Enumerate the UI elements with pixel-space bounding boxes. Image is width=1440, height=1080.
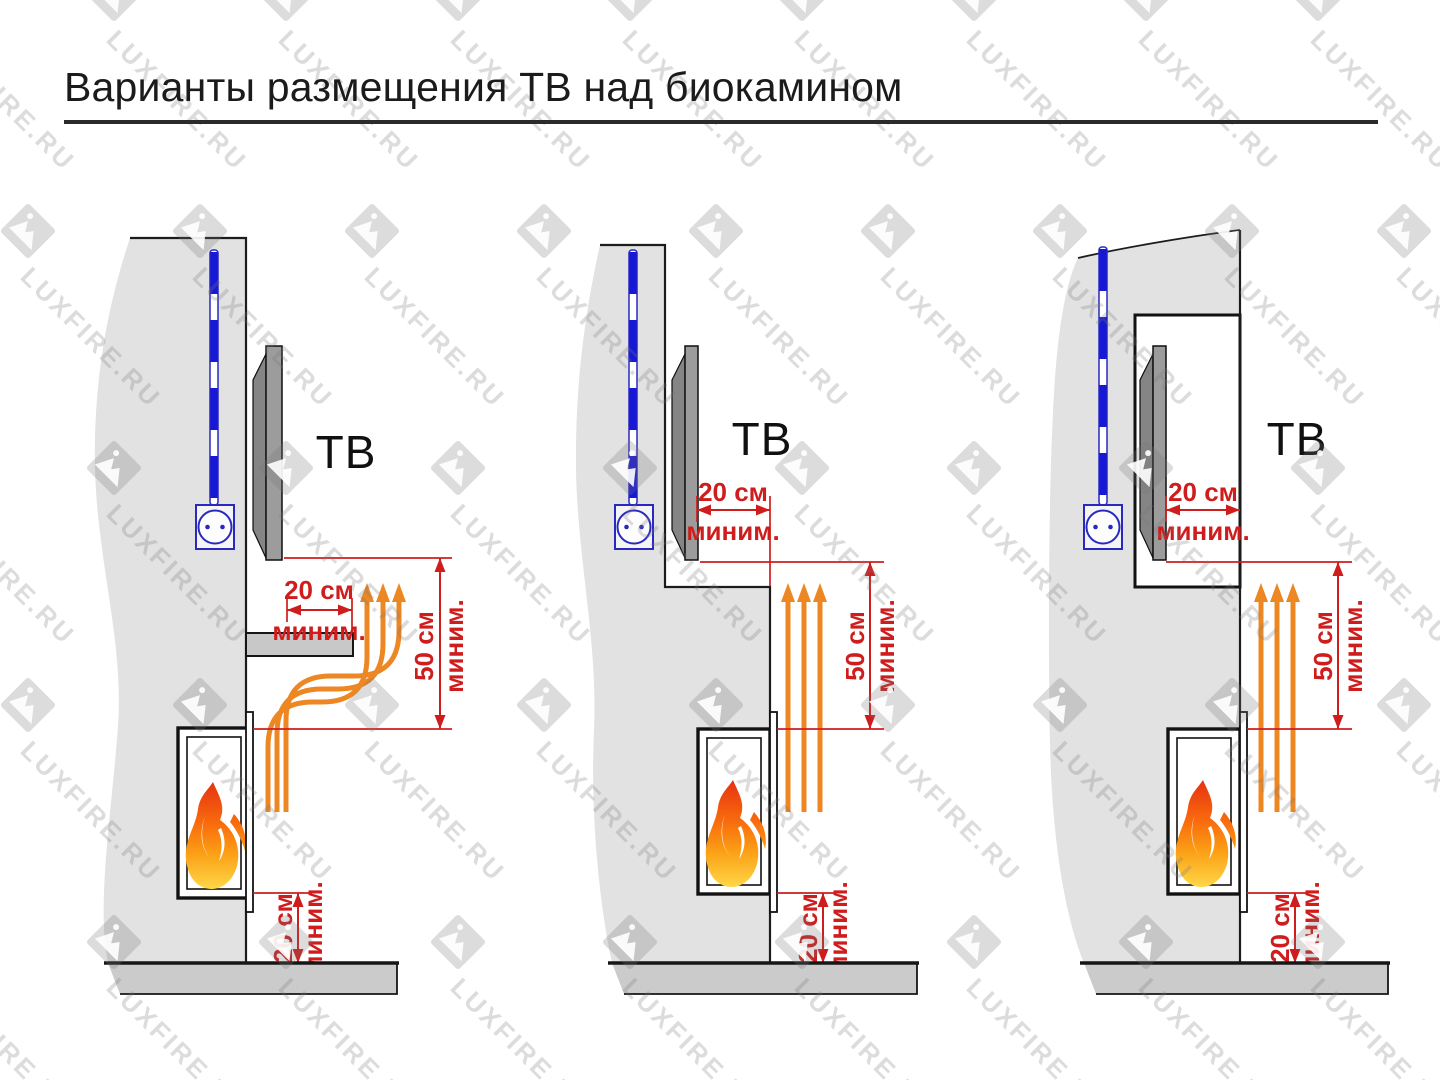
dim-bottom-min: миним.: [1295, 881, 1325, 974]
dim-side-value: 50 см: [409, 611, 439, 681]
title-underline: [64, 120, 1378, 124]
floor: [612, 963, 917, 994]
dim-side-value: 50 см: [840, 611, 870, 681]
dim-top-value: 20 см: [1168, 477, 1238, 507]
dim-top-value: 20 см: [284, 575, 354, 605]
dim-side-min: миним.: [870, 599, 900, 692]
dim-bottom-value: 20 см: [1265, 893, 1295, 963]
dim-top-value: 20 см: [698, 477, 768, 507]
tv-label: ТВ: [1267, 413, 1328, 465]
biofireplace: [178, 712, 253, 912]
dim-side-min: миним.: [439, 599, 469, 692]
diagram-svg: ТВ 20 см: [0, 0, 1440, 1080]
variant-3-niche-diagram: ТВ 20 см миним.: [1049, 230, 1390, 994]
dim-bottom-value: 20 см: [793, 893, 823, 963]
tv-label: ТВ: [316, 426, 377, 478]
tv-back: [672, 354, 685, 558]
variant-2-step-diagram: ТВ 20 см миним.: [576, 245, 919, 994]
dim-bottom-min: миним.: [823, 881, 853, 974]
tv-back: [1140, 354, 1153, 558]
heat-flow-arrows: [781, 583, 827, 812]
dim-top-min: миним.: [1156, 516, 1249, 546]
biofireplace: [1168, 712, 1247, 912]
infographic-canvas: ТВ 20 см: [0, 0, 1440, 1080]
page-title: Варианты размещения ТВ над биокамином: [64, 64, 903, 111]
dim-side-value: 50 см: [1308, 611, 1338, 681]
dim-bottom-value: 20 см: [268, 893, 298, 963]
biofireplace: [698, 712, 777, 912]
dim-top-min: миним.: [686, 516, 779, 546]
heat-flow-arrows: [1254, 583, 1300, 812]
tv-screen: [266, 346, 282, 560]
tv-back: [253, 354, 266, 558]
variant-1-shelf-diagram: ТВ 20 см: [95, 238, 469, 994]
dim-side-min: миним.: [1338, 599, 1368, 692]
dim-bottom-min: миним.: [298, 881, 328, 974]
tv-label: ТВ: [732, 413, 793, 465]
floor: [1084, 963, 1388, 994]
floor: [108, 963, 397, 994]
